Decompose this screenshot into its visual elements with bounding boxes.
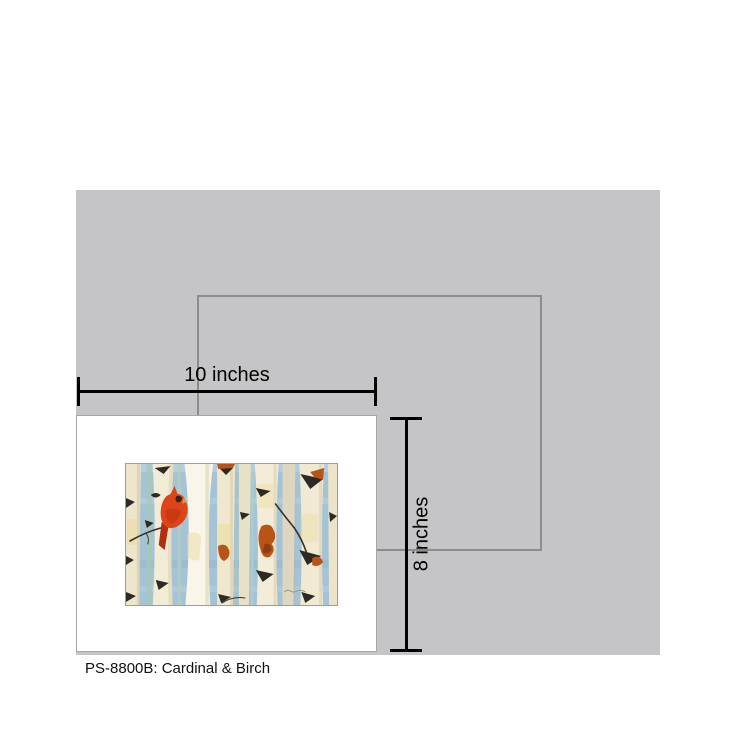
print-matte <box>76 415 377 652</box>
product-size-mockup: 10 inches 8 inches PS-8800B: Cardinal & … <box>0 0 738 738</box>
product-caption: PS-8800B: Cardinal & Birch <box>85 660 270 677</box>
height-dimension-tick-bottom <box>390 649 422 652</box>
artwork-cardinal-birch <box>125 463 338 606</box>
height-dimension-tick-top <box>390 417 422 420</box>
artwork-image <box>126 464 337 605</box>
width-dimension-label: 10 inches <box>77 363 377 387</box>
height-dimension-label: 8 inches <box>411 497 434 572</box>
height-dimension-line <box>405 417 408 652</box>
width-dimension-line <box>77 390 377 393</box>
